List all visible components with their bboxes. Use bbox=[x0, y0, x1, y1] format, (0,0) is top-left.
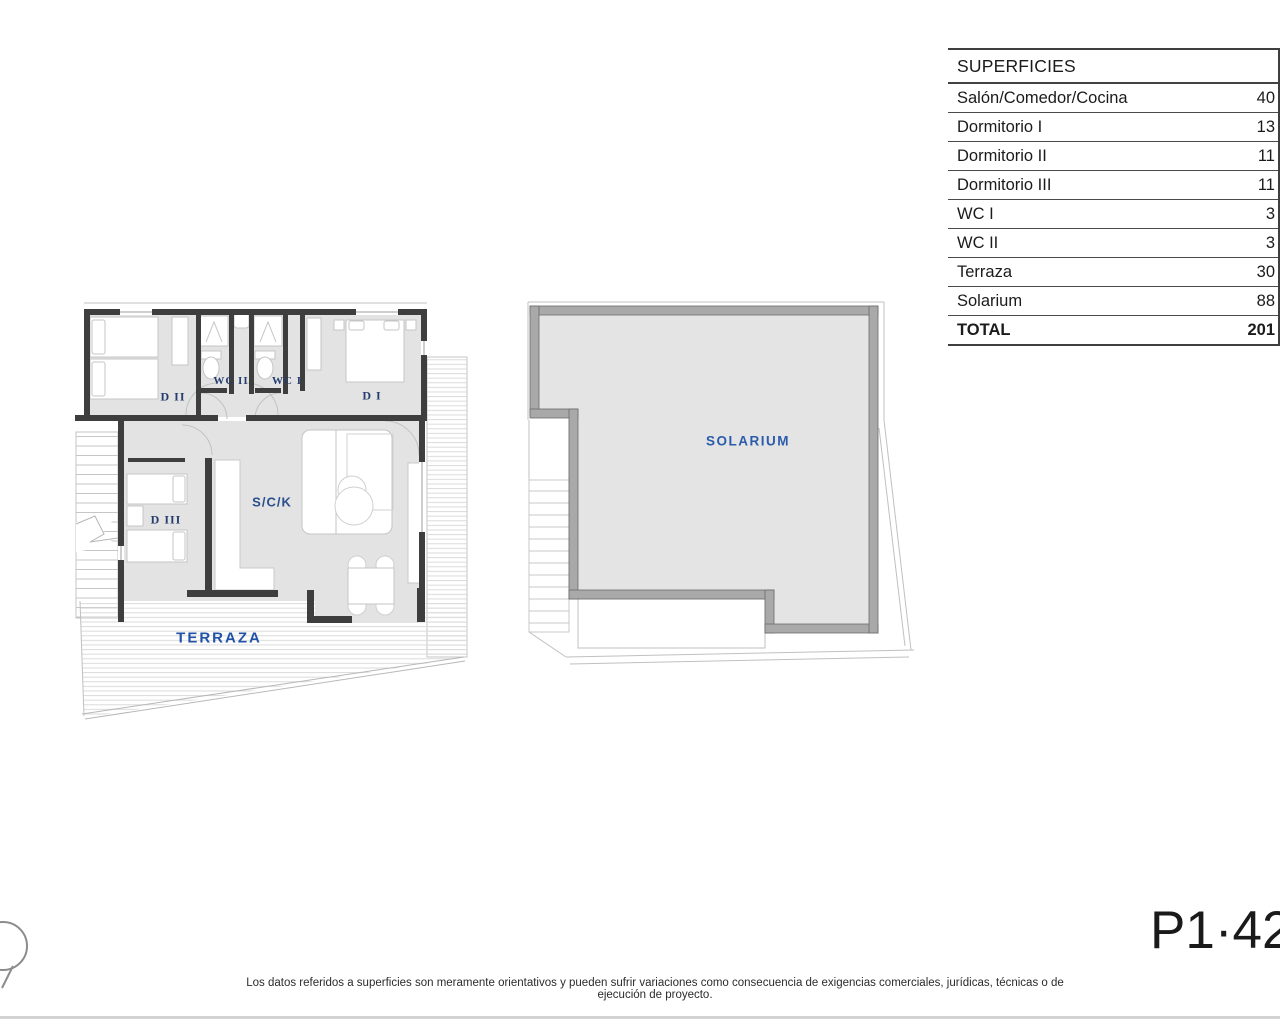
room-label-d2: D II bbox=[160, 390, 185, 405]
row-label: Terraza bbox=[957, 263, 1012, 282]
table-row: Dormitorio III 11 bbox=[948, 171, 1278, 200]
row-value: 11 bbox=[1258, 176, 1275, 195]
roof-stairs bbox=[529, 480, 569, 632]
row-value: 3 bbox=[1266, 234, 1275, 253]
row-label: WC II bbox=[957, 234, 998, 253]
row-value: 88 bbox=[1257, 292, 1275, 311]
table-row: WC II 3 bbox=[948, 229, 1278, 258]
sheet-bottom-edge bbox=[0, 1016, 1280, 1019]
superficies-table: SUPERFICIES Salón/Comedor/Cocina 40 Dorm… bbox=[948, 48, 1280, 346]
plan-code: P1·42 bbox=[1150, 903, 1280, 959]
roof-void bbox=[578, 599, 765, 648]
table-row: TOTAL 201 bbox=[948, 316, 1278, 344]
row-value: 11 bbox=[1258, 147, 1275, 166]
disclaimer: Los datos referidos a superficies son me… bbox=[240, 977, 1070, 1001]
superficies-rows: Salón/Comedor/Cocina 40 Dormitorio I 13 … bbox=[948, 84, 1278, 344]
room-label-terraza: TERRAZA bbox=[176, 630, 262, 647]
row-value: 30 bbox=[1257, 263, 1275, 282]
room-label-wc2: WC II bbox=[213, 375, 248, 387]
row-label: Dormitorio II bbox=[957, 147, 1047, 166]
table-row: Solarium 88 bbox=[948, 287, 1278, 316]
row-label: Dormitorio I bbox=[957, 118, 1042, 137]
superficies-title: SUPERFICIES bbox=[948, 50, 1278, 84]
row-label: Solarium bbox=[957, 292, 1022, 311]
row-label: Salón/Comedor/Cocina bbox=[957, 89, 1128, 108]
solarium-plan bbox=[528, 302, 914, 664]
logo-mark-icon bbox=[0, 922, 27, 988]
room-label-solarium: SOLARIUM bbox=[706, 434, 790, 449]
table-row: Terraza 30 bbox=[948, 258, 1278, 287]
apartment-plan bbox=[75, 303, 467, 719]
table-row: Salón/Comedor/Cocina 40 bbox=[948, 84, 1278, 113]
solarium-floor bbox=[539, 315, 869, 624]
row-label: WC I bbox=[957, 205, 994, 224]
room-label-d1: D I bbox=[362, 389, 381, 404]
row-value: 201 bbox=[1247, 321, 1275, 340]
row-value: 13 bbox=[1257, 118, 1275, 137]
table-row: Dormitorio I 13 bbox=[948, 113, 1278, 142]
room-label-d3: D III bbox=[151, 513, 182, 528]
row-value: 40 bbox=[1257, 89, 1275, 108]
row-label: Dormitorio III bbox=[957, 176, 1051, 195]
table-row: WC I 3 bbox=[948, 200, 1278, 229]
row-value: 3 bbox=[1266, 205, 1275, 224]
table-row: Dormitorio II 11 bbox=[948, 142, 1278, 171]
room-label-sck: S/C/K bbox=[252, 495, 292, 510]
row-label: TOTAL bbox=[957, 321, 1010, 340]
plan-sheet: D II WC II WC I D I D III S/C/K TERRAZA … bbox=[0, 0, 1280, 1024]
room-label-wc1: WC I bbox=[272, 375, 302, 387]
